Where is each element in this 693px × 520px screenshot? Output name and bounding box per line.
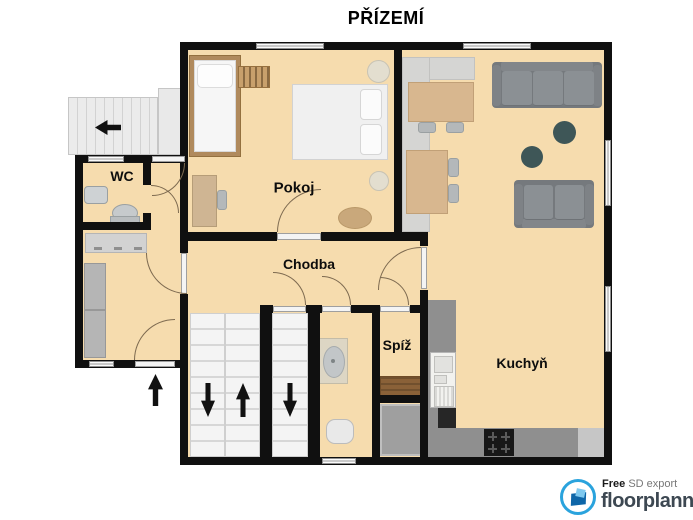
door-frame-spiz xyxy=(380,306,410,312)
door-frame-bath xyxy=(322,306,351,312)
utility-appliance xyxy=(380,404,424,456)
chodba-bottom-wall-b xyxy=(306,305,322,313)
sink-drain xyxy=(331,359,335,363)
wc-sink xyxy=(84,186,108,204)
kitchen-counter-end xyxy=(578,428,604,457)
window-pokoj-top xyxy=(256,43,324,49)
door-frame-entrance xyxy=(135,361,175,367)
rug xyxy=(338,207,372,229)
stair-divider-wall xyxy=(260,305,272,465)
fridge-compartment xyxy=(434,356,453,373)
window-kuchyn-top xyxy=(463,43,531,49)
window-bath-bottom xyxy=(322,458,356,464)
bath-wall-right xyxy=(372,305,380,465)
door-frame-kuchyn xyxy=(421,247,427,289)
window-right-1 xyxy=(605,140,611,206)
door-frame-pokoj xyxy=(277,233,321,240)
floorplan-export-page: { "title": "PŘÍZEMÍ", "rooms": { "wc": "… xyxy=(0,0,693,520)
window-wc-top xyxy=(88,156,124,162)
round-stool xyxy=(369,171,389,191)
wall-bottom xyxy=(180,457,612,465)
chodba-kuchyn-wall-a xyxy=(420,232,428,246)
window-right-2 xyxy=(605,286,611,352)
wall-right xyxy=(604,42,612,465)
room-label-spiz: Spíž xyxy=(383,337,412,353)
single-bed-pillow xyxy=(197,64,233,88)
wing-wall-left xyxy=(75,155,83,368)
wall-left-lower xyxy=(180,294,188,465)
double-bed-pillow xyxy=(360,124,382,155)
pantry-shelf xyxy=(380,376,424,396)
desk-chair xyxy=(217,190,227,210)
sofa-back xyxy=(522,219,586,228)
door-frame-vestibule xyxy=(152,156,185,162)
sofa-two-seat xyxy=(514,180,594,228)
sofa-armrest xyxy=(585,184,594,225)
burner-icon xyxy=(501,432,510,441)
desk xyxy=(192,175,217,227)
pokoj-kuchyn-wall xyxy=(394,50,402,232)
room-label-pokoj: Pokoj xyxy=(274,180,315,197)
dining-table xyxy=(406,150,448,214)
logo-free-text: Free xyxy=(602,478,625,490)
arrow-up-icon xyxy=(148,374,163,406)
wall-left-upper xyxy=(180,42,188,253)
sofa-cushion xyxy=(533,71,563,106)
cooktop xyxy=(484,429,514,456)
pokoj-chodba-wall-b xyxy=(321,232,428,241)
chodba-bottom-wall-d xyxy=(410,305,428,313)
burner-icon xyxy=(488,444,497,453)
dining-table xyxy=(408,82,474,122)
wardrobe-divider xyxy=(84,309,106,311)
burner-icon xyxy=(488,432,497,441)
spiz-bottom-wall xyxy=(380,395,428,403)
logo-cube-face xyxy=(575,488,585,498)
dining-chair xyxy=(446,122,464,133)
bathroom-vanity xyxy=(318,338,348,384)
bathroom-toilet xyxy=(326,419,354,444)
bed-ladder xyxy=(238,66,270,88)
side-table xyxy=(553,121,576,144)
door-frame-stairs xyxy=(273,306,306,312)
bath-wall-left xyxy=(308,313,320,465)
sofa-back xyxy=(501,62,593,71)
sofa-three-seat xyxy=(492,62,602,108)
dining-chair xyxy=(448,184,459,203)
fridge-vent xyxy=(434,386,454,407)
logo-brand-text: floorplanner xyxy=(601,490,693,513)
wc-wall-bottom xyxy=(83,222,151,230)
logo-tagline: Free SD export xyxy=(602,478,677,490)
floorplanner-logo-icon xyxy=(560,479,596,515)
sofa-armrest xyxy=(514,184,523,225)
sofa-armrest xyxy=(492,65,501,106)
double-bed-pillow xyxy=(360,89,382,120)
chodba-kuchyn-wall-b xyxy=(420,290,428,465)
room-label-kuchyn: Kuchyň xyxy=(496,355,547,371)
burner-icon xyxy=(501,444,510,453)
page-title: PŘÍZEMÍ xyxy=(348,8,425,29)
pokoj-chodba-wall-a xyxy=(188,232,277,241)
refrigerator xyxy=(430,352,456,408)
sofa-cushion xyxy=(524,185,553,220)
sofa-cushion xyxy=(502,71,532,106)
staircase-divider xyxy=(224,313,226,457)
window-entry-bottom xyxy=(89,361,114,367)
dining-chair xyxy=(418,122,436,133)
side-table xyxy=(521,146,543,168)
dining-chair xyxy=(448,158,459,177)
sofa-cushion xyxy=(555,185,584,220)
wall-top xyxy=(180,42,612,50)
coat-hook xyxy=(114,247,122,250)
coat-hook xyxy=(134,247,142,250)
coat-rack-shelf xyxy=(85,233,147,253)
logo-export-text: SD export xyxy=(628,478,677,490)
coat-hook xyxy=(94,247,102,250)
fridge-handle xyxy=(434,375,447,384)
round-stool xyxy=(367,60,390,83)
sofa-cushion xyxy=(564,71,594,106)
room-label-chodba: Chodba xyxy=(283,256,335,272)
wc-wall-right-a xyxy=(143,163,151,185)
sofa-armrest xyxy=(593,65,602,106)
room-label-wc: WC xyxy=(110,168,133,184)
